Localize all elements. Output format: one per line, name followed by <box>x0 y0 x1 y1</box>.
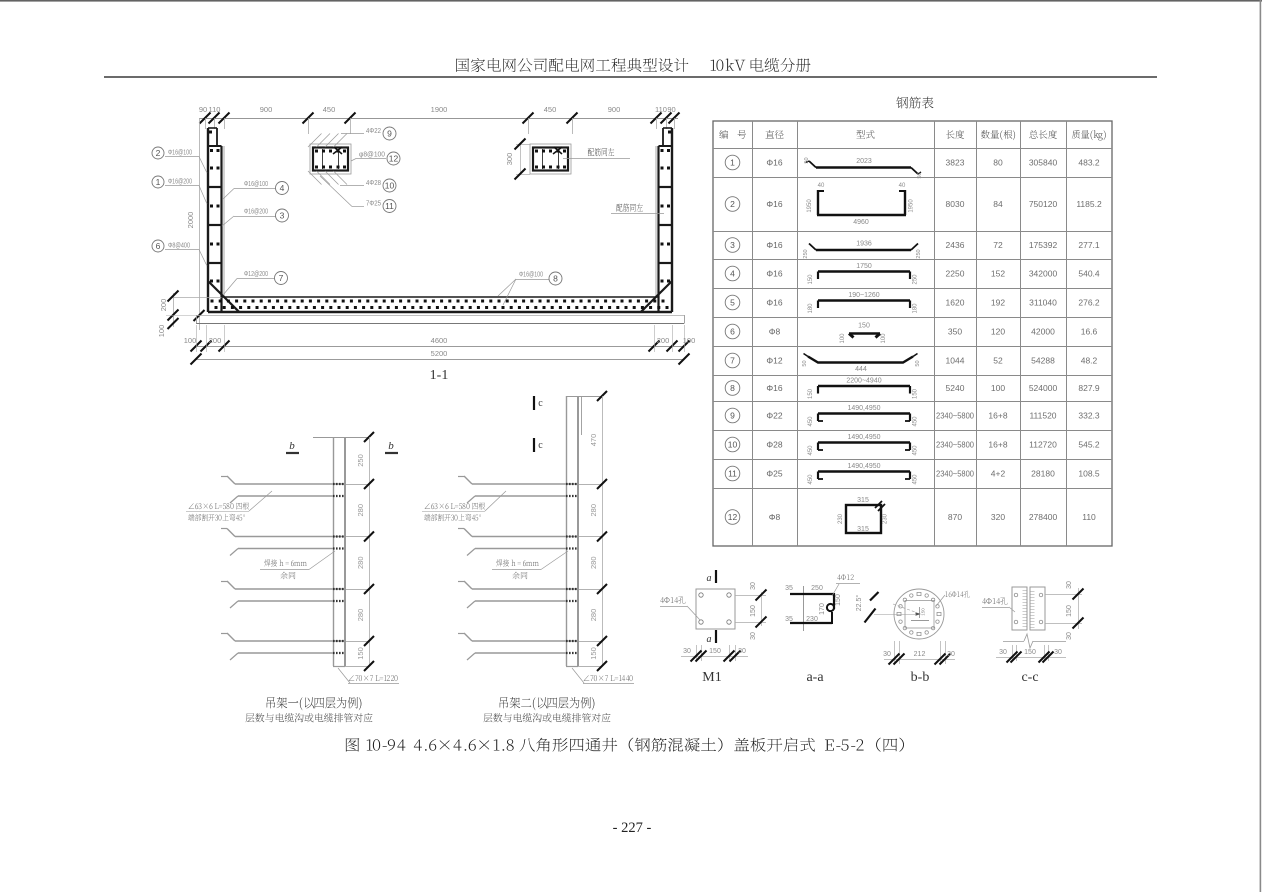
svg-text:315: 315 <box>857 526 869 533</box>
svg-text:16.6: 16.6 <box>1081 327 1098 337</box>
svg-text:50: 50 <box>802 360 808 366</box>
svg-text:1490,4950: 1490,4950 <box>847 434 880 441</box>
svg-text:35: 35 <box>785 616 793 623</box>
svg-text:54288: 54288 <box>1031 356 1055 366</box>
svg-text:30: 30 <box>750 632 757 640</box>
svg-text:277.1: 277.1 <box>1078 240 1100 250</box>
svg-text:4Φ28: 4Φ28 <box>366 180 381 187</box>
svg-text:110: 110 <box>655 105 667 114</box>
svg-text:Φ16@200: Φ16@200 <box>168 177 192 186</box>
svg-text:540.4: 540.4 <box>1078 269 1100 279</box>
svg-text:750120: 750120 <box>1029 199 1058 209</box>
svg-text:10: 10 <box>385 180 395 190</box>
svg-text:φ8@100: φ8@100 <box>359 152 385 159</box>
svg-text:870: 870 <box>948 512 962 522</box>
svg-text:7: 7 <box>279 273 284 283</box>
svg-text:4: 4 <box>730 268 735 278</box>
svg-text:30: 30 <box>1066 581 1073 589</box>
svg-text:2: 2 <box>156 148 161 158</box>
svg-text:Φ16: Φ16 <box>766 199 783 209</box>
svg-text:250: 250 <box>811 585 823 592</box>
svg-text:110: 110 <box>209 105 221 114</box>
svg-text:150: 150 <box>356 647 365 660</box>
svg-text:7Φ25: 7Φ25 <box>366 201 381 208</box>
svg-text:12: 12 <box>389 153 399 163</box>
svg-text:22.5°: 22.5° <box>855 595 863 612</box>
svg-text:250: 250 <box>803 249 809 258</box>
svg-text:16+8: 16+8 <box>988 440 1007 450</box>
svg-text:1: 1 <box>156 177 161 187</box>
svg-text:5240: 5240 <box>946 383 965 393</box>
svg-text:6: 6 <box>730 326 735 336</box>
svg-text:1750: 1750 <box>856 263 872 270</box>
svg-text:342000: 342000 <box>1029 269 1058 279</box>
svg-text:30: 30 <box>1066 632 1073 640</box>
svg-text:100: 100 <box>991 383 1005 393</box>
svg-text:Φ16: Φ16 <box>766 158 783 168</box>
svg-text:30: 30 <box>738 648 746 655</box>
svg-text:320: 320 <box>991 512 1005 522</box>
svg-text:2000: 2000 <box>186 212 195 229</box>
svg-text:Φ8@400: Φ8@400 <box>168 241 190 250</box>
svg-text:1044: 1044 <box>946 356 965 366</box>
svg-text:450: 450 <box>913 474 919 485</box>
svg-text:2200~4940: 2200~4940 <box>846 378 881 385</box>
svg-text:150: 150 <box>913 388 919 399</box>
svg-text:112720: 112720 <box>1029 440 1057 450</box>
svg-text:b-b: b-b <box>911 670 930 685</box>
svg-text:483.2: 483.2 <box>1078 158 1100 168</box>
svg-text:450: 450 <box>808 416 814 427</box>
svg-text:444: 444 <box>855 366 867 373</box>
svg-text:180: 180 <box>808 303 814 314</box>
svg-text:c-c: c-c <box>1021 670 1038 685</box>
svg-text:1490,4950: 1490,4950 <box>847 405 880 412</box>
svg-text:7: 7 <box>730 355 735 365</box>
svg-text:250: 250 <box>916 249 922 258</box>
svg-text:Φ12: Φ12 <box>766 356 783 366</box>
svg-text:111520: 111520 <box>1029 411 1056 421</box>
svg-text:2340~5800: 2340~5800 <box>936 411 974 421</box>
svg-text:28180: 28180 <box>1031 469 1055 479</box>
svg-text:192: 192 <box>991 298 1005 308</box>
svg-text:2340~5800: 2340~5800 <box>936 440 974 450</box>
svg-text:80: 80 <box>993 158 1003 168</box>
svg-text:50: 50 <box>917 172 923 178</box>
svg-text:5: 5 <box>730 297 735 307</box>
svg-text:11: 11 <box>728 468 737 478</box>
svg-text:30: 30 <box>683 648 691 655</box>
svg-text:72: 72 <box>993 240 1003 250</box>
svg-text:1-1: 1-1 <box>430 368 449 383</box>
svg-text:Φ16@100: Φ16@100 <box>519 270 543 279</box>
svg-text:280: 280 <box>356 609 365 622</box>
svg-text:Φ16: Φ16 <box>766 269 783 279</box>
svg-text:280: 280 <box>589 609 598 622</box>
svg-text:150: 150 <box>589 647 598 660</box>
svg-text:110: 110 <box>1082 512 1096 522</box>
svg-text:300: 300 <box>505 153 514 166</box>
svg-text:150: 150 <box>709 648 721 655</box>
svg-text:150: 150 <box>835 594 842 606</box>
svg-text:1620: 1620 <box>946 298 965 308</box>
svg-text:450: 450 <box>544 105 557 114</box>
svg-text:1950: 1950 <box>909 199 915 213</box>
svg-text:150: 150 <box>921 608 926 616</box>
svg-text:4+2: 4+2 <box>991 469 1006 479</box>
svg-text:Φ22: Φ22 <box>766 411 783 421</box>
svg-text:200: 200 <box>657 336 670 345</box>
svg-text:470: 470 <box>589 434 598 447</box>
svg-text:Φ16@100: Φ16@100 <box>168 148 192 157</box>
svg-text:276.2: 276.2 <box>1078 298 1100 308</box>
svg-text:900: 900 <box>260 105 273 114</box>
svg-text:350: 350 <box>948 327 962 337</box>
svg-text:545.2: 545.2 <box>1078 440 1100 450</box>
svg-text:Φ16@200: Φ16@200 <box>244 207 268 216</box>
svg-text:50: 50 <box>804 157 810 163</box>
svg-text:b: b <box>289 440 295 452</box>
svg-text:315: 315 <box>857 497 869 504</box>
svg-text:100: 100 <box>184 336 197 345</box>
svg-text:4Φ22: 4Φ22 <box>366 128 381 135</box>
svg-text:9: 9 <box>387 128 392 138</box>
svg-text:84: 84 <box>993 199 1003 209</box>
svg-text:6: 6 <box>156 241 161 251</box>
svg-text:30: 30 <box>999 649 1007 656</box>
svg-text:8: 8 <box>730 383 735 393</box>
svg-text:100: 100 <box>157 325 166 338</box>
svg-text:a-a: a-a <box>806 670 824 685</box>
svg-text:1900: 1900 <box>431 105 448 114</box>
svg-text:200: 200 <box>209 336 222 345</box>
svg-text:35: 35 <box>785 585 793 592</box>
svg-text:305840: 305840 <box>1029 158 1058 168</box>
svg-text:12: 12 <box>728 512 738 522</box>
svg-text:Φ8: Φ8 <box>769 327 781 337</box>
svg-text:50: 50 <box>915 360 921 366</box>
svg-text:190~1260: 190~1260 <box>848 292 879 299</box>
svg-text:Φ16: Φ16 <box>766 240 783 250</box>
svg-text:100: 100 <box>840 333 846 344</box>
svg-text:Φ16: Φ16 <box>766 383 783 393</box>
svg-text:c: c <box>538 398 543 409</box>
svg-text:1936: 1936 <box>856 241 872 248</box>
svg-text:48.2: 48.2 <box>1081 356 1098 366</box>
svg-text:c: c <box>538 440 543 451</box>
svg-text:Φ28: Φ28 <box>766 440 783 450</box>
svg-text:150: 150 <box>750 605 757 617</box>
svg-text:450: 450 <box>913 445 919 456</box>
svg-text:150: 150 <box>1066 605 1073 617</box>
svg-text:1185.2: 1185.2 <box>1076 199 1102 209</box>
svg-text:2250: 2250 <box>946 269 965 279</box>
svg-text:Φ25: Φ25 <box>766 469 783 479</box>
svg-text:3: 3 <box>730 240 735 250</box>
svg-text:280: 280 <box>589 556 598 569</box>
svg-text:108.5: 108.5 <box>1078 469 1100 479</box>
svg-text:280: 280 <box>356 556 365 569</box>
svg-text:Φ16: Φ16 <box>766 298 783 308</box>
svg-text:524000: 524000 <box>1029 383 1058 393</box>
svg-text:30: 30 <box>883 651 891 658</box>
svg-text:42000: 42000 <box>1031 327 1055 337</box>
svg-text:200: 200 <box>159 299 168 312</box>
svg-text:Φ16@100: Φ16@100 <box>244 179 268 188</box>
svg-text:120: 120 <box>991 327 1005 337</box>
svg-text:30: 30 <box>750 582 757 590</box>
svg-text:230: 230 <box>806 616 818 623</box>
svg-text:90: 90 <box>667 105 675 114</box>
svg-text:100: 100 <box>881 333 887 344</box>
svg-text:278400: 278400 <box>1029 512 1058 522</box>
svg-text:2340~5800: 2340~5800 <box>936 469 974 479</box>
svg-text:280: 280 <box>356 504 365 517</box>
svg-text:a: a <box>707 573 712 584</box>
svg-text:11: 11 <box>385 201 394 211</box>
svg-text:280: 280 <box>589 504 598 517</box>
svg-text:4600: 4600 <box>431 336 448 345</box>
svg-text:170: 170 <box>819 603 826 615</box>
svg-text:30: 30 <box>1054 649 1062 656</box>
svg-text:3823: 3823 <box>946 158 965 168</box>
svg-text:1: 1 <box>730 157 735 167</box>
svg-text:2: 2 <box>730 199 735 209</box>
svg-text:150: 150 <box>858 323 870 330</box>
svg-text:152: 152 <box>991 269 1005 279</box>
svg-text:5200: 5200 <box>431 349 448 358</box>
svg-text:100: 100 <box>683 336 696 345</box>
svg-text:175392: 175392 <box>1029 240 1058 250</box>
svg-text:4960: 4960 <box>853 219 869 226</box>
svg-text:40: 40 <box>818 183 825 189</box>
svg-text:90: 90 <box>199 105 207 114</box>
svg-text:M1: M1 <box>702 670 721 685</box>
svg-text:180: 180 <box>913 303 919 314</box>
svg-text:150: 150 <box>1024 649 1036 656</box>
svg-text:250: 250 <box>913 274 919 285</box>
svg-text:52: 52 <box>993 356 1003 366</box>
svg-text:1490,4950: 1490,4950 <box>847 463 880 470</box>
svg-text:40: 40 <box>899 183 906 189</box>
svg-text:Φ12@200: Φ12@200 <box>244 269 268 278</box>
svg-text:2436: 2436 <box>946 240 965 250</box>
svg-text:450: 450 <box>323 105 336 114</box>
svg-text:3: 3 <box>280 210 285 220</box>
svg-text:900: 900 <box>608 105 621 114</box>
svg-text:450: 450 <box>808 445 814 456</box>
svg-text:450: 450 <box>808 474 814 485</box>
svg-text:9: 9 <box>730 410 735 420</box>
svg-text:16+8: 16+8 <box>988 411 1007 421</box>
svg-text:212: 212 <box>914 651 926 658</box>
svg-text:230: 230 <box>883 513 889 524</box>
svg-text:250: 250 <box>356 454 365 467</box>
svg-text:332.3: 332.3 <box>1078 411 1100 421</box>
svg-text:827.9: 827.9 <box>1078 383 1100 393</box>
svg-text:10: 10 <box>728 439 738 449</box>
svg-text:30: 30 <box>947 651 955 658</box>
svg-text:- 227 -: - 227 - <box>613 820 652 836</box>
svg-text:311040: 311040 <box>1029 298 1057 308</box>
svg-text:2023: 2023 <box>856 158 872 165</box>
svg-text:1950: 1950 <box>807 199 813 213</box>
svg-text:450: 450 <box>913 416 919 427</box>
svg-text:4: 4 <box>280 183 285 193</box>
svg-text:8: 8 <box>553 273 558 283</box>
svg-text:b: b <box>388 440 394 452</box>
svg-text:150: 150 <box>808 388 814 399</box>
svg-text:a: a <box>707 634 712 645</box>
svg-text:8030: 8030 <box>946 199 965 209</box>
svg-text:Φ8: Φ8 <box>769 512 781 522</box>
svg-text:230: 230 <box>838 513 844 524</box>
svg-text:150: 150 <box>808 274 814 285</box>
